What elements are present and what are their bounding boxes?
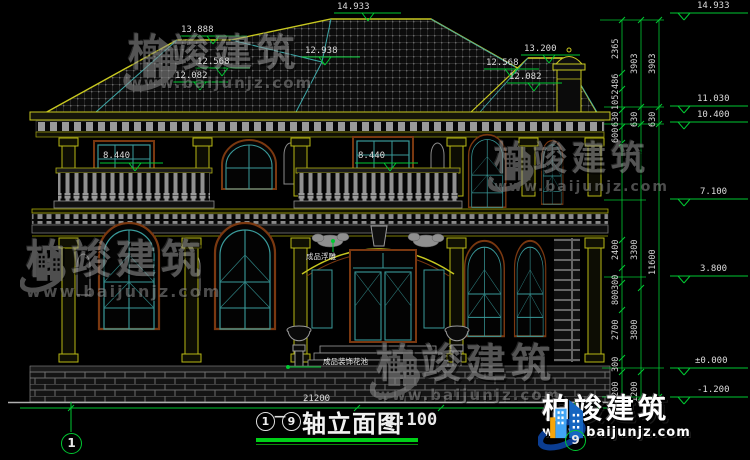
dim-label: 2365: [612, 39, 621, 59]
second-floor: [54, 135, 604, 208]
dim-label: 486: [612, 74, 621, 89]
axis-bubble-9: 9: [565, 430, 586, 451]
dim-label: 630: [631, 112, 640, 127]
elevation-label: 12.568: [197, 58, 230, 68]
dim-label: 2400: [612, 240, 621, 260]
dim-label: 3800: [631, 320, 640, 340]
elevation-label: 14.933: [697, 2, 730, 12]
title-underline: [256, 438, 418, 442]
dim-label: 300: [612, 275, 621, 290]
dim-label: 600: [612, 128, 621, 143]
elevation-label: 8.440: [358, 152, 385, 162]
dim-label: 300: [612, 357, 621, 372]
elevation-label: 12.082: [509, 73, 542, 83]
elevation-label: 12.568: [486, 59, 519, 69]
elevation-label: 3.800: [700, 265, 727, 275]
elevation-label: 12.938: [305, 47, 338, 57]
elevation-label: ±0.000: [695, 357, 728, 367]
brand-logo: 柏竣建筑 www.baijunjz.com: [538, 394, 750, 460]
elevation-label: 10.400: [697, 111, 730, 121]
elevation-label: 12.082: [175, 72, 208, 82]
title-underline-thin: [256, 444, 418, 445]
relief-callout: 成品浮雕: [306, 253, 336, 261]
dim-label: 3903: [649, 54, 658, 74]
title-axis-to: 9: [282, 412, 301, 431]
flowerbed-callout: 成品装饰花池: [323, 358, 368, 366]
dim-label: 3903: [631, 54, 640, 74]
elevation-label: 13.200: [524, 45, 557, 55]
elevation-label: 7.100: [700, 188, 727, 198]
elevation-label: 13.888: [181, 26, 214, 36]
title-axis-from: 1: [256, 412, 275, 431]
axis-bubble-1: 1: [61, 433, 82, 454]
title-scale: 1:100: [386, 410, 437, 430]
dim-label: 630: [612, 112, 621, 127]
dim-label: 2700: [612, 320, 621, 340]
elevation-label: 11.030: [697, 95, 730, 105]
cad-canvas: 柏竣建筑 www.baijunjz.com 柏竣建筑 www.baijunjz.…: [0, 0, 750, 460]
dim-label: 3300: [631, 240, 640, 260]
dim-label: 1052: [612, 90, 621, 110]
dim-label: 11600: [649, 249, 658, 275]
elevation-label: 14.933: [337, 3, 370, 13]
dim-label: 630: [649, 112, 658, 127]
elevation-label: 8.440: [103, 152, 130, 162]
dim-label: 800: [612, 290, 621, 305]
